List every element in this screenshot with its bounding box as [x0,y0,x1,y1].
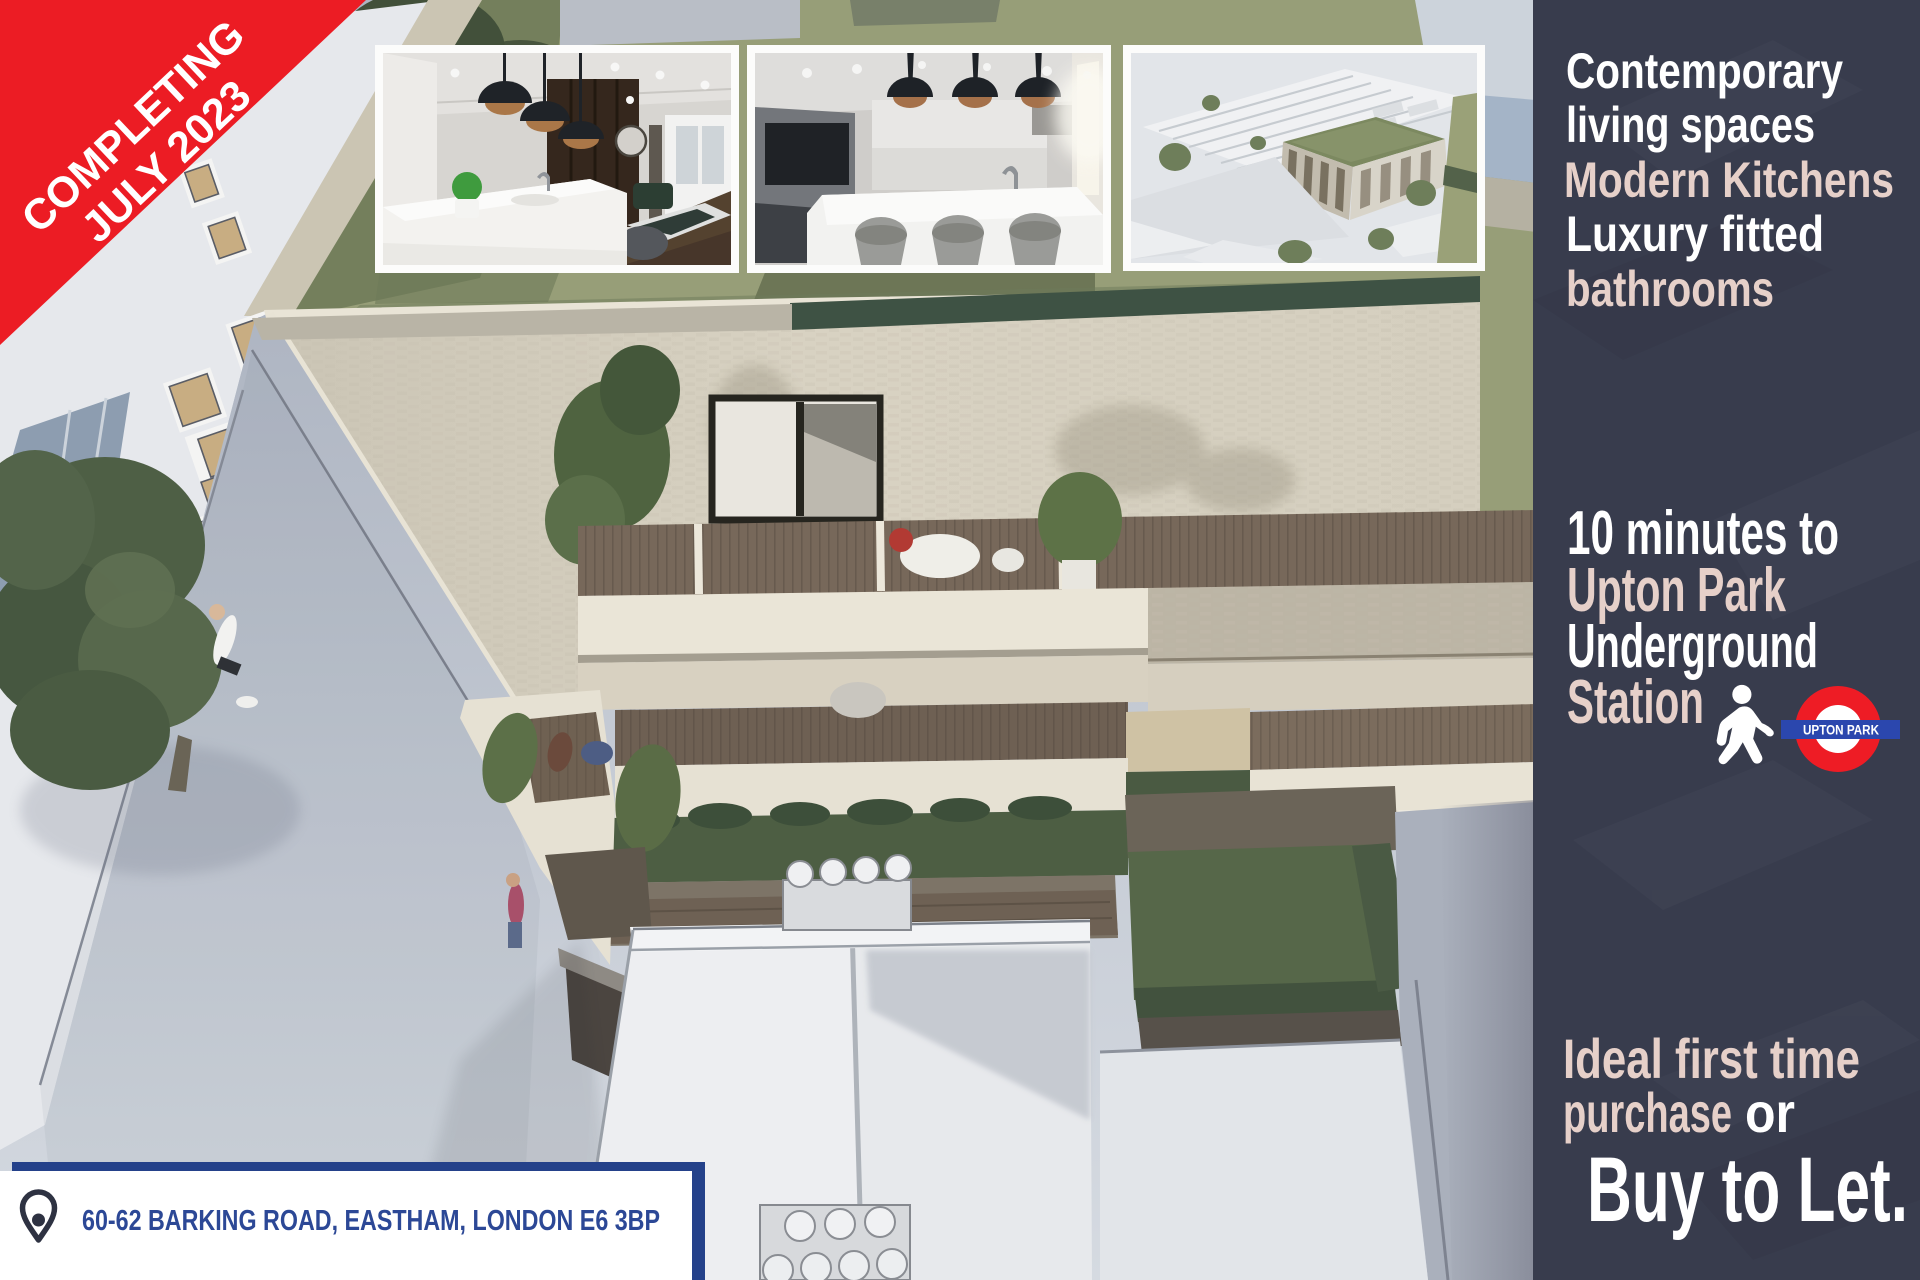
svg-text:Buy to Let.: Buy to Let. [1587,1139,1908,1241]
svg-text:Station: Station [1567,668,1704,737]
svg-text:Modern Kitchens: Modern Kitchens [1564,152,1894,208]
svg-text:purchase: purchase [1563,1081,1732,1144]
svg-text:Luxury fitted: Luxury fitted [1566,206,1824,262]
svg-text:bathrooms: bathrooms [1566,261,1774,317]
svg-text:living spaces: living spaces [1566,97,1815,153]
svg-text:Contemporary: Contemporary [1566,43,1843,99]
svg-text:or: or [1745,1081,1795,1144]
svg-text:UPTON PARK: UPTON PARK [1803,723,1879,738]
svg-text:60-62 BARKING ROAD, EASTHAM, L: 60-62 BARKING ROAD, EASTHAM, LONDON E6 3… [82,1205,660,1237]
